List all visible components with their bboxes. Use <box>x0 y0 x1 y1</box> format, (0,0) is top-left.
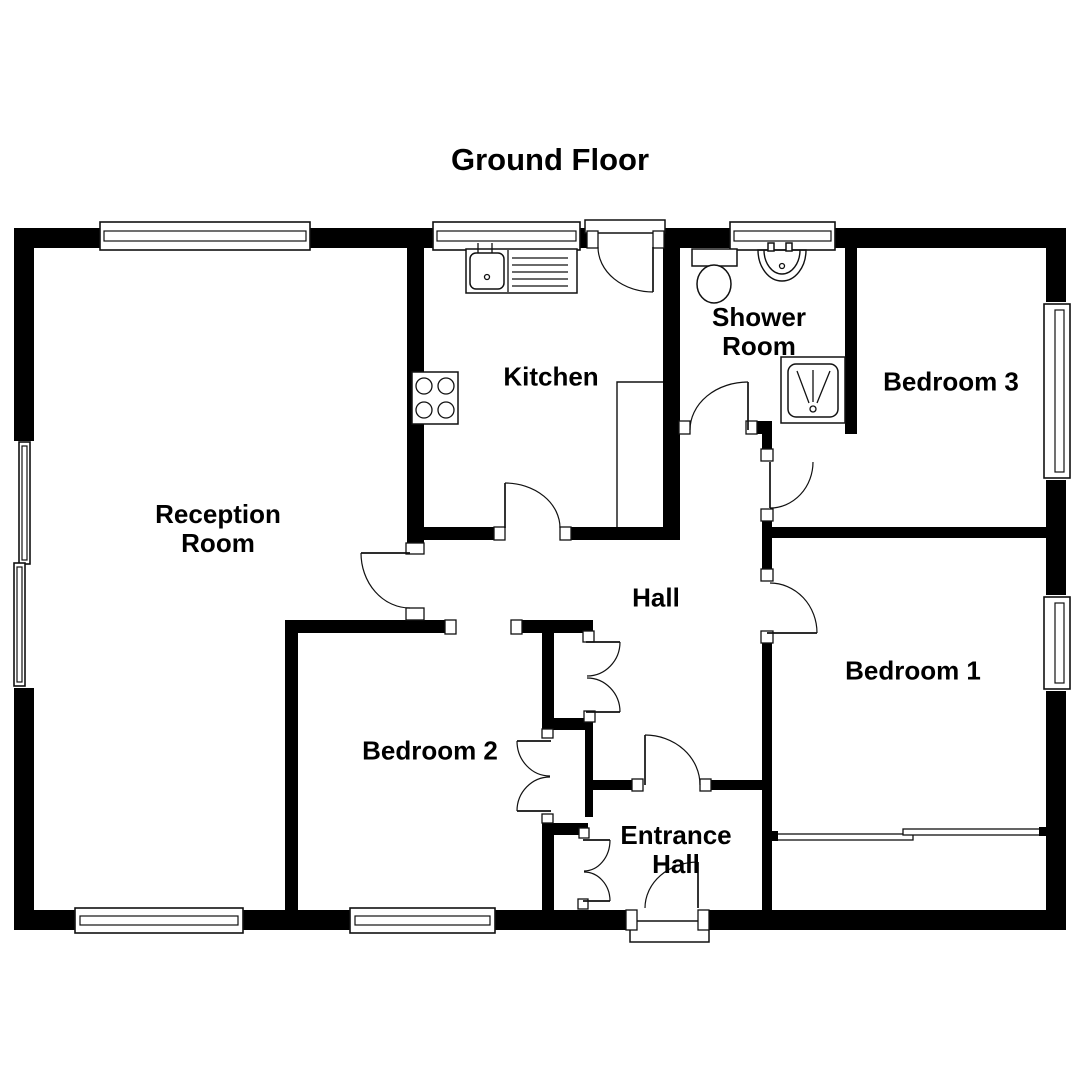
reception-hall-door-swing-arc <box>361 553 410 608</box>
door-jamb <box>679 421 690 434</box>
room-label-entrance-hall: Entrance Hall <box>606 821 746 879</box>
room-label-reception-room: Reception Room <box>128 500 308 558</box>
door-jamb <box>511 620 522 634</box>
window-bottom-reception <box>75 908 243 933</box>
door-jamb <box>632 779 643 791</box>
room-label-bedroom-1: Bedroom 1 <box>845 656 981 685</box>
door-jamb <box>542 814 553 823</box>
room-label-kitchen: Kitchen <box>503 362 598 391</box>
basin-tap <box>786 243 792 251</box>
bedroom1-partition <box>903 829 1045 835</box>
door-jamb <box>542 729 553 738</box>
bedroom3-south-wall <box>762 527 1046 538</box>
door-jamb <box>653 231 664 248</box>
bedroom3-door-gap <box>760 461 774 510</box>
bedroom2-wardrobe-door-top-swing-arc <box>517 741 550 776</box>
kitchen-hall-door-gap <box>504 526 561 541</box>
window-left-lower <box>14 563 25 686</box>
window-bottom-bedroom2 <box>350 908 495 933</box>
kitchen-east-wall <box>663 248 680 540</box>
hall-cupboard-door-bottom-swing-arc <box>587 678 620 712</box>
door-jamb <box>494 527 505 540</box>
bedroom2-east-wall-lower <box>542 823 554 910</box>
window-right-bedroom1 <box>1044 597 1070 689</box>
kitchen-back-door-swing-arc <box>598 247 653 292</box>
window-left-upper <box>19 442 30 564</box>
door-jamb <box>587 231 598 248</box>
door-jamb <box>406 608 424 620</box>
basin <box>758 250 806 281</box>
entrance-inner-door-gap <box>642 779 701 791</box>
shower-east-wall <box>845 248 857 434</box>
basin-drain <box>780 264 785 269</box>
toilet-cistern <box>692 249 737 266</box>
basin-inner <box>764 250 800 274</box>
basin-tap <box>768 243 774 251</box>
floor-plan-page: Ground Floor Reception Room Kitchen Show… <box>0 0 1080 1080</box>
partition-cap <box>771 831 778 841</box>
plan-title: Ground Floor <box>451 142 649 178</box>
door-jamb <box>583 631 594 642</box>
shower-door-gap <box>689 421 747 434</box>
hall-cupboard-door-top-swing-arc <box>587 642 620 676</box>
bedroom1-door-swing-arc <box>770 583 817 633</box>
reception-door-gap <box>405 553 426 608</box>
window-top-shower <box>730 222 835 250</box>
room-label-bedroom-2: Bedroom 2 <box>362 736 498 765</box>
toilet-bowl <box>697 265 731 303</box>
bedroom1-door-gap <box>760 581 774 632</box>
door-jamb <box>560 527 571 540</box>
door-jamb <box>579 828 589 838</box>
front-porch-step <box>630 921 709 942</box>
door-jamb <box>698 910 709 930</box>
window-top-kitchen <box>433 222 580 250</box>
door-jamb <box>761 509 773 521</box>
door-jamb <box>445 620 456 634</box>
door-jamb <box>700 779 711 791</box>
bedroom3-door-swing-arc <box>770 462 813 508</box>
door-jamb <box>626 910 637 930</box>
bedroom2-east-wall-upper <box>542 620 554 730</box>
kitchen-hall-door-swing-arc <box>505 483 560 528</box>
bedroom2-door-gap <box>456 619 512 634</box>
room-label-hall: Hall <box>632 583 680 612</box>
door-jamb <box>761 449 773 461</box>
hall-entrance-door-swing-arc <box>645 735 700 785</box>
bedroom1-partition <box>772 834 913 840</box>
room-label-bedroom-3: Bedroom 3 <box>883 367 1019 396</box>
door-jamb <box>761 569 773 581</box>
kitchen-cupboard-outline <box>617 382 663 527</box>
bedroom2-wardrobe-door-bottom-swing-arc <box>517 777 550 811</box>
partition-cap <box>1039 827 1046 836</box>
kitchen-sink <box>470 253 504 289</box>
room-label-shower-room: Shower Room <box>694 303 824 361</box>
window-right-bedroom3 <box>1044 304 1070 478</box>
window-top-reception <box>100 222 310 250</box>
bedroom2-west-wall <box>285 620 298 910</box>
cupboard-mid-wall <box>585 718 593 817</box>
